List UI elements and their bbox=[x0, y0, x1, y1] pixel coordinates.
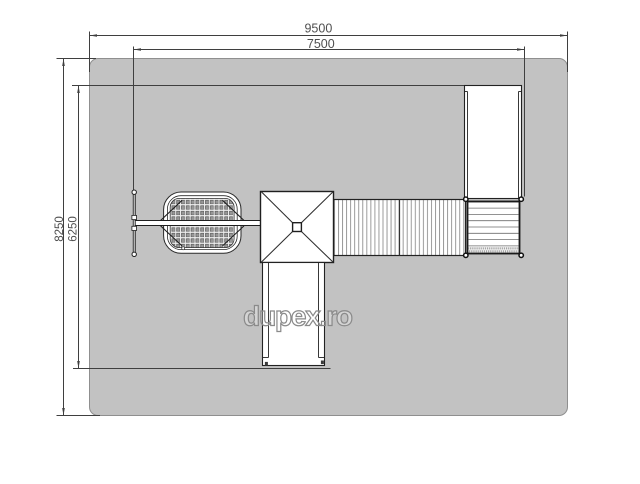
svg-text:6250: 6250 bbox=[68, 216, 80, 242]
svg-text:dupex.ro: dupex.ro bbox=[243, 301, 353, 332]
svg-text:8250: 8250 bbox=[54, 216, 66, 242]
svg-text:9500: 9500 bbox=[304, 21, 332, 35]
svg-text:7500: 7500 bbox=[307, 37, 335, 51]
